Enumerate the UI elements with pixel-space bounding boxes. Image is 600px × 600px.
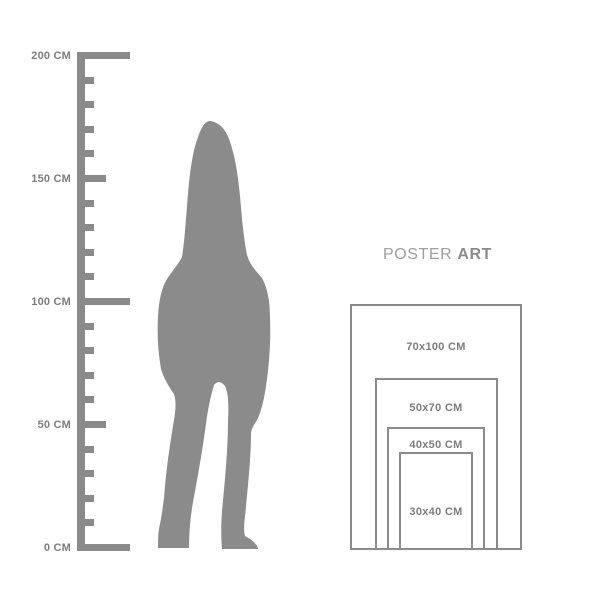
poster-title-bold: ART — [457, 246, 492, 263]
poster-size-label-50x70: 50x70 CM — [377, 402, 496, 414]
poster-size-label-70x100: 70x100 CM — [352, 341, 520, 353]
poster-guide-title: POSTER ART — [350, 245, 525, 265]
poster-title-regular: POSTER — [383, 246, 452, 263]
poster-size-label-30x40: 30x40 CM — [401, 506, 471, 518]
poster-size-label-40x50: 40x50 CM — [389, 439, 483, 451]
poster-size-guide: 200 CM150 CM100 CM50 CM0 CM POSTER ART 7… — [0, 0, 600, 600]
poster-rect-30x40: 30x40 CM — [399, 452, 473, 550]
woman-silhouette-path — [158, 121, 271, 549]
